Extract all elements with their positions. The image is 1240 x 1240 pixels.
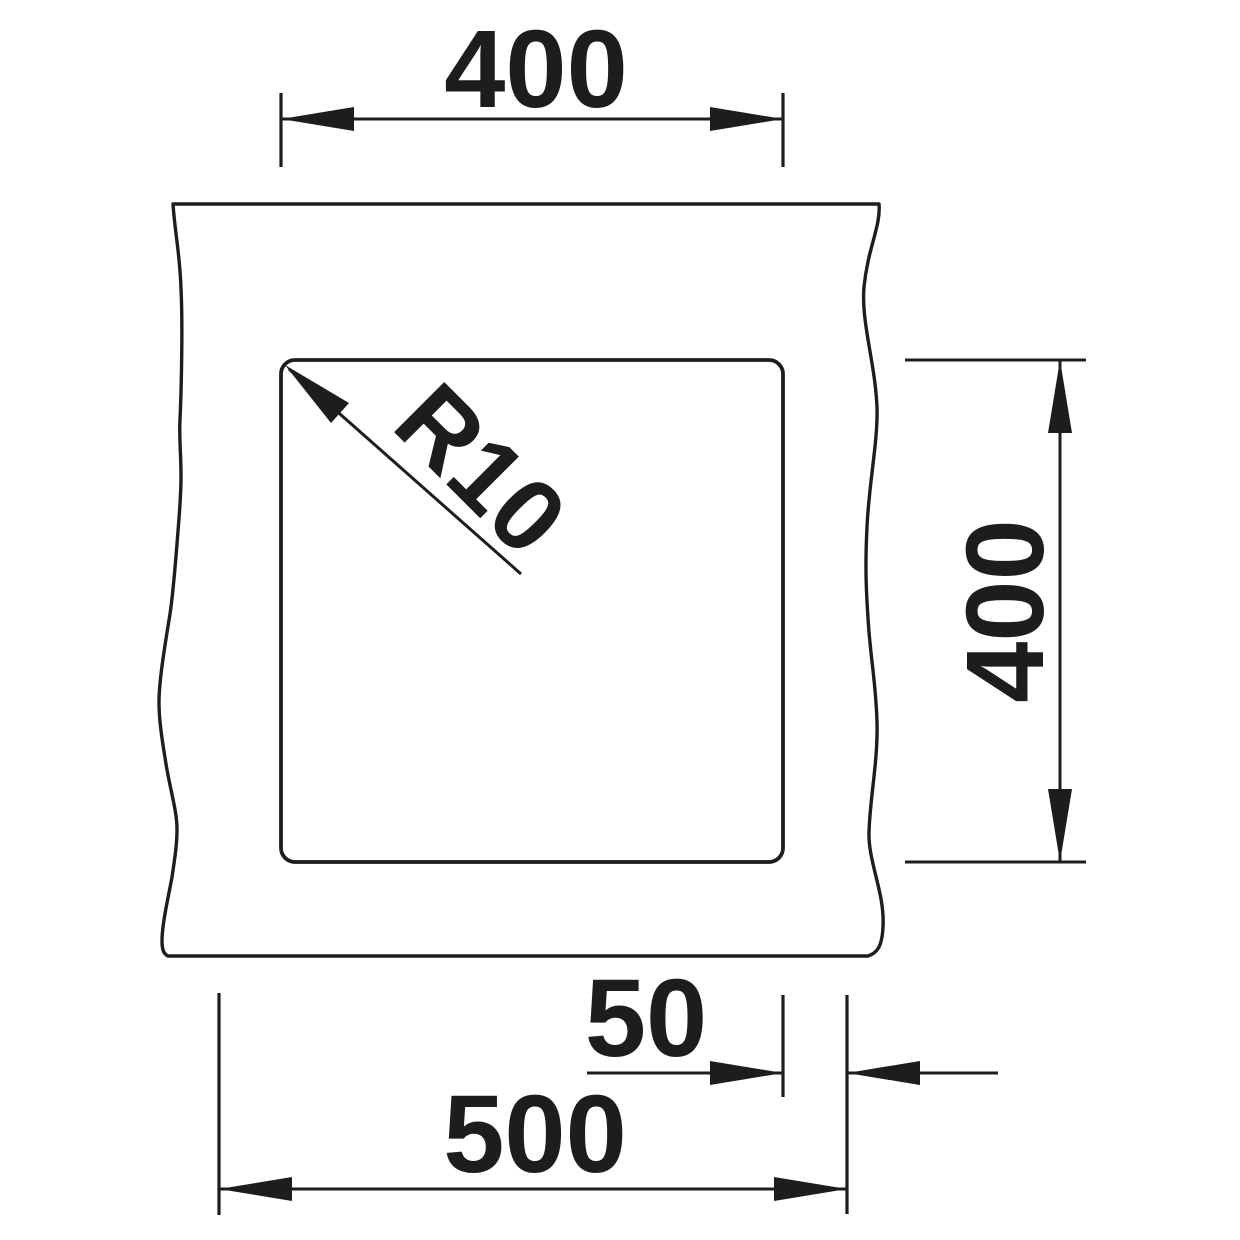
right-height-label: 400 xyxy=(944,519,1067,703)
right-height-arrow-down xyxy=(1048,789,1072,862)
dimension-edge-offset: 50 xyxy=(585,957,998,1214)
edge-offset-arrow-left xyxy=(847,1061,920,1085)
right-height-arrow-up xyxy=(1048,360,1072,433)
overall-width-arrow-left xyxy=(219,1177,292,1201)
top-width-arrow-left xyxy=(281,107,354,131)
overall-width-arrow-right xyxy=(774,1177,847,1201)
edge-offset-label: 50 xyxy=(585,957,707,1080)
dimension-top-width: 400 xyxy=(281,8,783,167)
dimension-right-height: 400 xyxy=(905,360,1086,862)
cutout-outline xyxy=(281,360,783,862)
edge-offset-arrow-right xyxy=(710,1061,783,1085)
dimension-overall-width: 500 xyxy=(219,993,847,1215)
sink-cutout-drawing: 400 400 R10 50 xyxy=(0,0,1240,1240)
technical-drawing-canvas: 400 400 R10 50 xyxy=(0,0,1240,1240)
top-width-label: 400 xyxy=(444,8,628,131)
overall-width-label: 500 xyxy=(443,1073,627,1196)
top-width-arrow-right xyxy=(710,107,783,131)
